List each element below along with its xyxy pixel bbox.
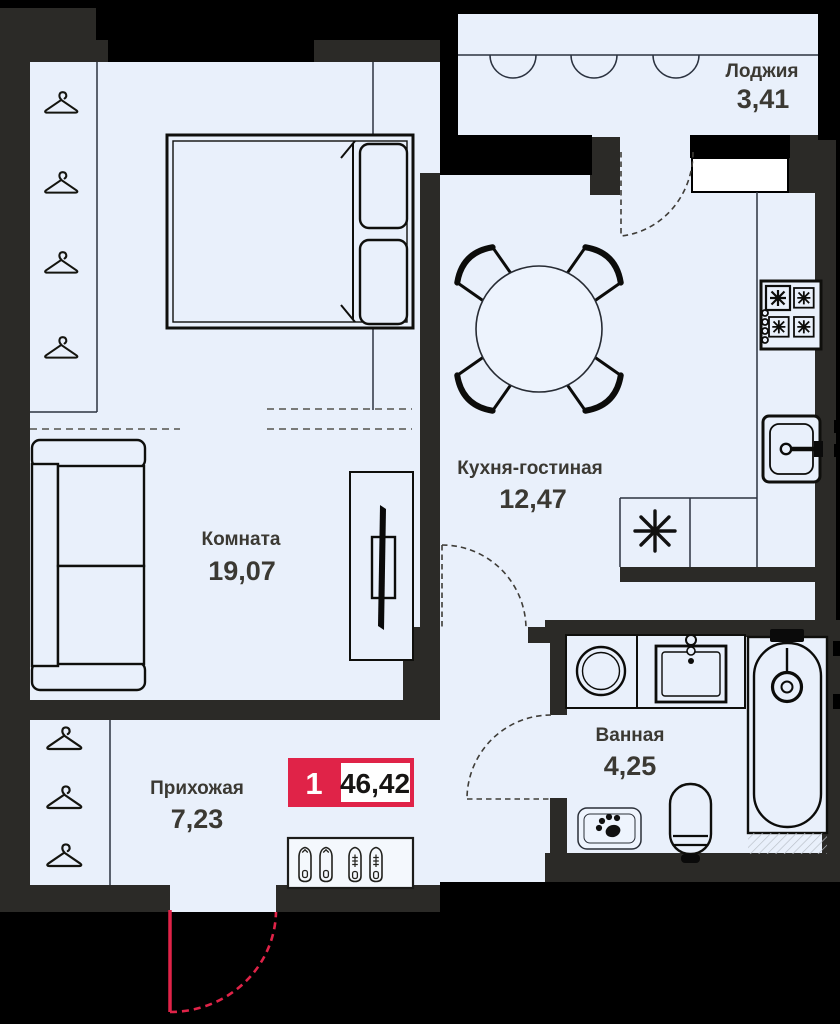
balcony-window-icon bbox=[692, 158, 788, 192]
shoe-rack-icon bbox=[288, 838, 413, 888]
badge-total-area: 46,42 bbox=[340, 768, 410, 799]
vent-asterisk-icon bbox=[635, 511, 675, 551]
room-label-hallway: Прихожая bbox=[150, 778, 244, 799]
floor-plan: Комната 19,07 Кухня-гостиная 12,47 Прихо… bbox=[0, 0, 840, 1024]
kitchen-sink-icon bbox=[763, 416, 823, 482]
badge-rooms-count: 1 bbox=[305, 766, 322, 801]
room-area-loggia: 3,41 bbox=[737, 84, 790, 114]
stove-icon bbox=[761, 281, 821, 349]
room-label-loggia: Лоджия bbox=[726, 61, 799, 82]
washbasin-icon bbox=[637, 635, 745, 708]
hatched-area bbox=[748, 833, 827, 854]
room-area-komnata: 19,07 bbox=[208, 556, 276, 586]
pet-mat-icon bbox=[578, 808, 641, 849]
room-label-kitchen: Кухня-гостиная bbox=[457, 458, 603, 479]
tv-stand-icon bbox=[350, 472, 413, 660]
double-bed-icon bbox=[167, 135, 413, 328]
washing-machine-icon bbox=[566, 635, 637, 708]
room-area-kitchen: 12,47 bbox=[499, 484, 567, 514]
sofa-icon bbox=[32, 440, 145, 690]
bathtub-icon bbox=[748, 629, 827, 833]
room-label-komnata: Комната bbox=[202, 529, 281, 550]
room-label-bathroom: Ванная bbox=[596, 725, 665, 746]
room-area-bathroom: 4,25 bbox=[604, 751, 657, 781]
apartment-badge: 1 46,42 bbox=[288, 758, 414, 807]
room-area-hallway: 7,23 bbox=[171, 804, 224, 834]
